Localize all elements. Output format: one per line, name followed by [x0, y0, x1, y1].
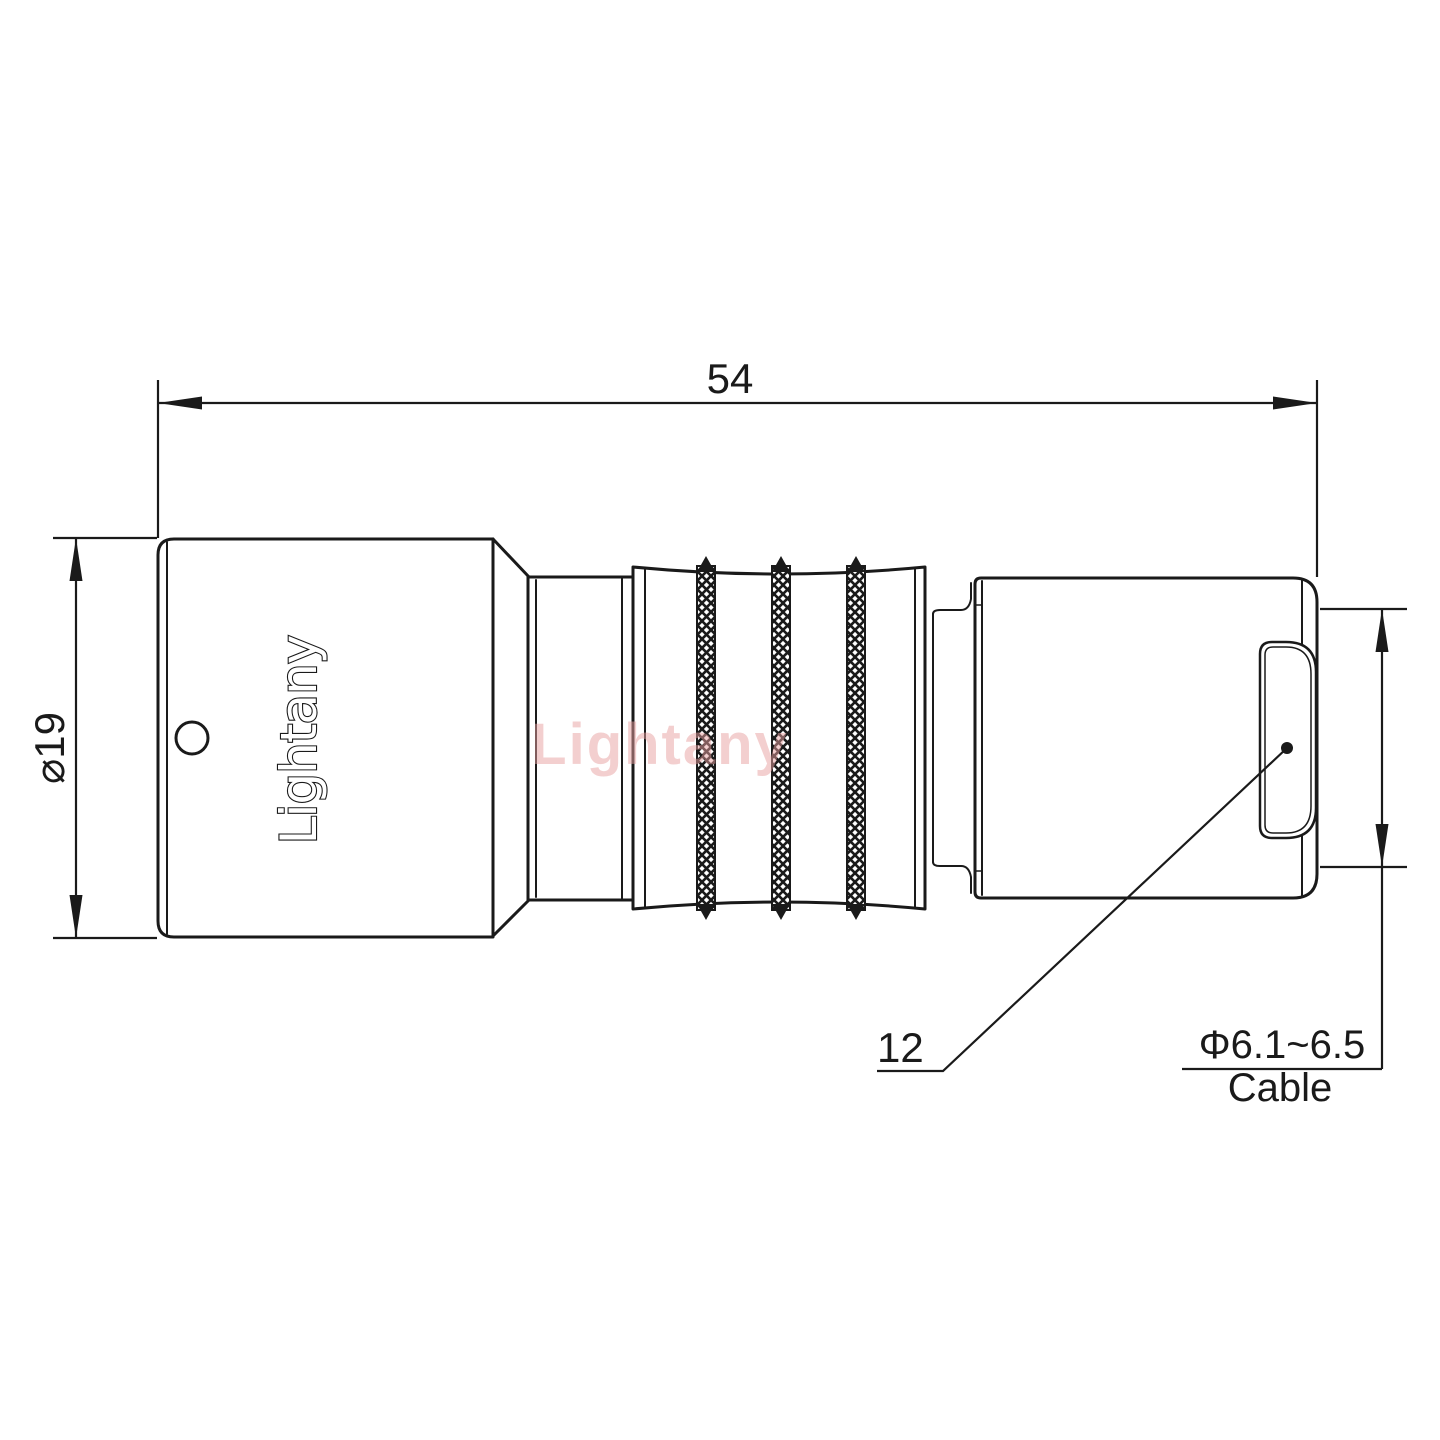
cable-label-text: Cable — [1228, 1066, 1333, 1110]
cable-spec-text: Φ6.1~6.5 — [1199, 1023, 1365, 1067]
bushing-dim-text: 12 — [877, 1024, 924, 1071]
dim-body-diameter-text: ⌀19 — [26, 712, 73, 784]
knurl-band-3 — [847, 556, 865, 920]
cable-end-cylinder — [975, 578, 1317, 898]
watermark-text: Lightany — [531, 712, 789, 777]
drawing-canvas: 54 ⌀19 Lightany — [0, 0, 1440, 1440]
connector-technical-drawing: 54 ⌀19 Lightany — [0, 0, 1440, 1440]
left-body: Lightany — [158, 539, 493, 937]
dim-overall-length-text: 54 — [707, 355, 754, 402]
body-logo-text: Lightany — [270, 635, 328, 844]
cable-bushing-outline — [1260, 642, 1316, 838]
